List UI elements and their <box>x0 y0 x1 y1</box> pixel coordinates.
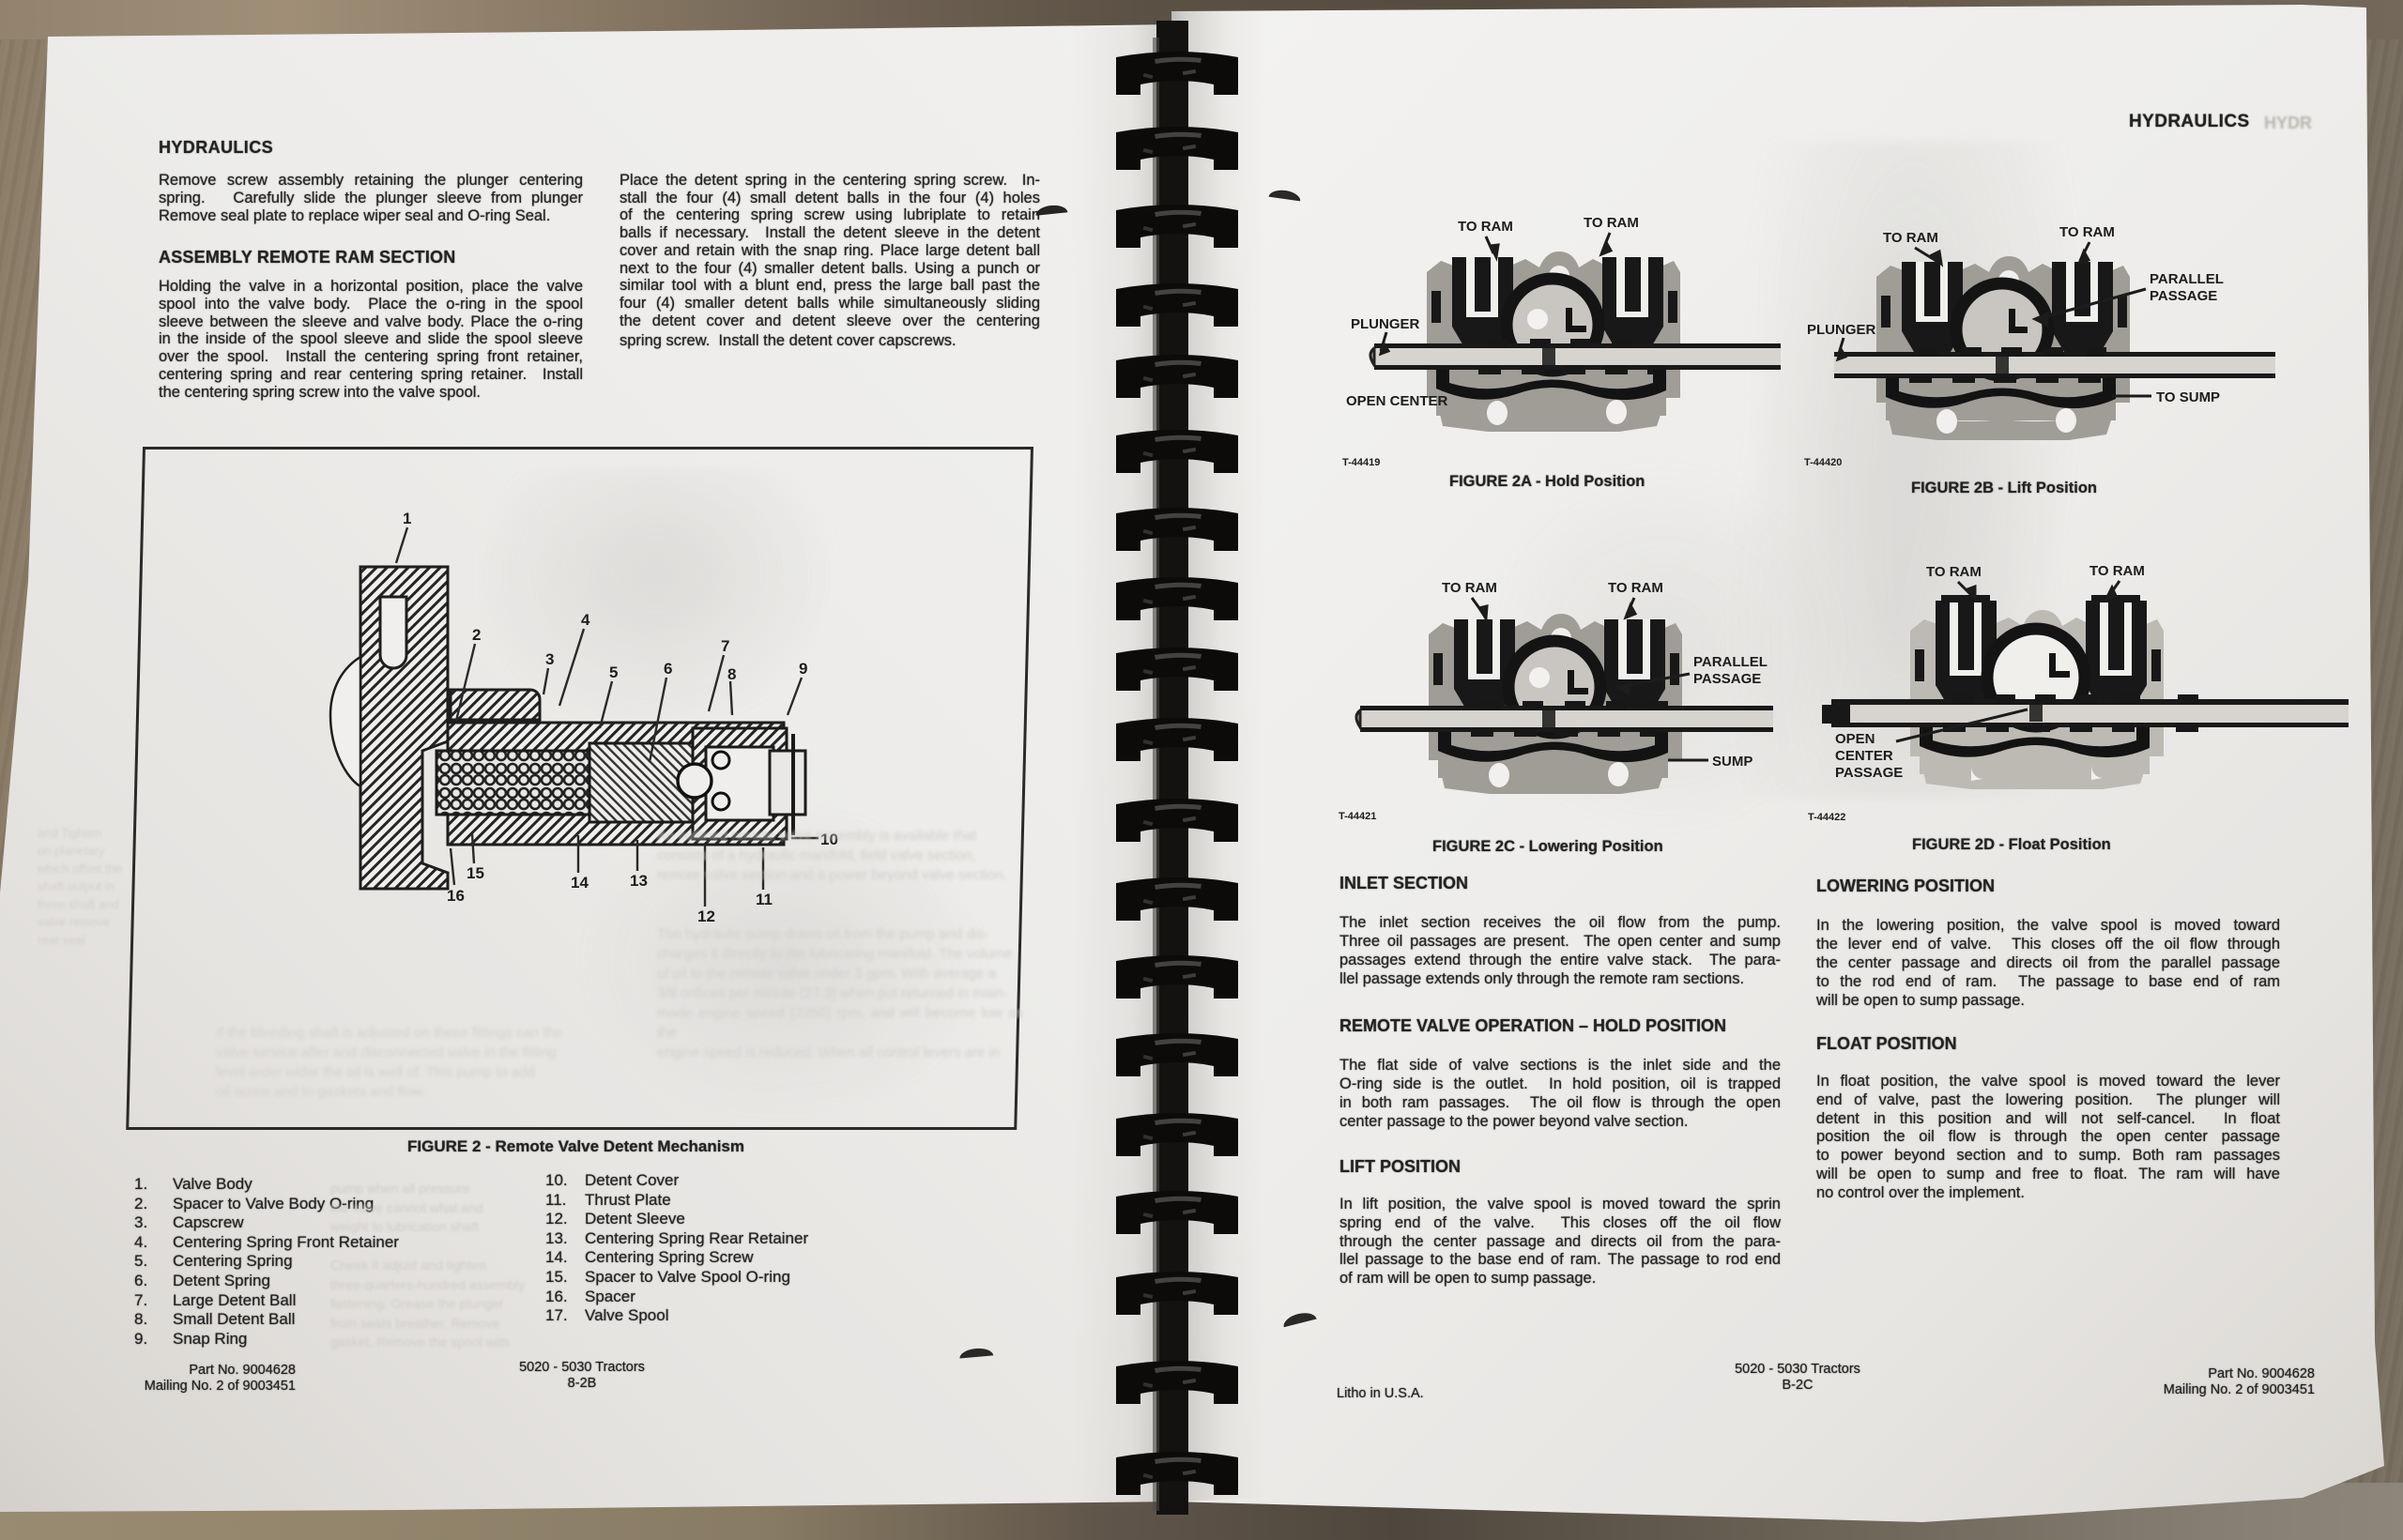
svg-text:13: 13 <box>630 872 648 890</box>
svg-text:3: 3 <box>545 650 554 668</box>
svg-text:5: 5 <box>609 663 618 681</box>
svg-text:OPEN: OPEN <box>1835 731 1875 747</box>
svg-text:TO RAM: TO RAM <box>1883 230 1938 246</box>
svg-text:T-44421: T-44421 <box>1339 811 1376 822</box>
svg-text:TO RAM: TO RAM <box>1608 580 1663 596</box>
svg-text:PARALLEL: PARALLEL <box>1693 654 1768 670</box>
svg-text:PLUNGER: PLUNGER <box>1807 322 1876 338</box>
svg-text:TO SUMP: TO SUMP <box>2156 389 2220 405</box>
svg-text:PASSAGE: PASSAGE <box>1693 671 1761 687</box>
svg-text:TO RAM: TO RAM <box>2059 224 2115 240</box>
svg-text:T-44420: T-44420 <box>1804 457 1842 468</box>
svg-text:15: 15 <box>467 864 484 882</box>
svg-text:1: 1 <box>403 510 411 527</box>
svg-text:SUMP: SUMP <box>1712 754 1753 770</box>
svg-text:TO RAM: TO RAM <box>1458 219 1513 235</box>
svg-text:TO RAM: TO RAM <box>1926 564 1982 580</box>
svg-text:TO RAM: TO RAM <box>1442 580 1497 596</box>
svg-text:7: 7 <box>721 637 729 655</box>
svg-text:16: 16 <box>447 887 465 905</box>
svg-text:TO RAM: TO RAM <box>2089 563 2145 579</box>
svg-text:2: 2 <box>472 626 481 644</box>
svg-text:14: 14 <box>571 874 589 892</box>
svg-text:PARALLEL: PARALLEL <box>2150 271 2224 287</box>
svg-text:6: 6 <box>664 660 672 678</box>
svg-text:PASSAGE: PASSAGE <box>2150 288 2217 304</box>
svg-text:T-44419: T-44419 <box>1342 457 1380 468</box>
svg-text:4: 4 <box>581 611 590 629</box>
svg-text:PLUNGER: PLUNGER <box>1351 316 1420 332</box>
svg-text:TO RAM: TO RAM <box>1584 215 1639 231</box>
svg-text:9: 9 <box>799 660 807 678</box>
svg-text:PASSAGE: PASSAGE <box>1835 765 1903 781</box>
svg-text:T-44422: T-44422 <box>1808 812 1845 823</box>
svg-text:CENTER: CENTER <box>1835 748 1893 764</box>
svg-text:OPEN CENTER: OPEN CENTER <box>1346 393 1448 409</box>
svg-text:8: 8 <box>727 665 736 683</box>
